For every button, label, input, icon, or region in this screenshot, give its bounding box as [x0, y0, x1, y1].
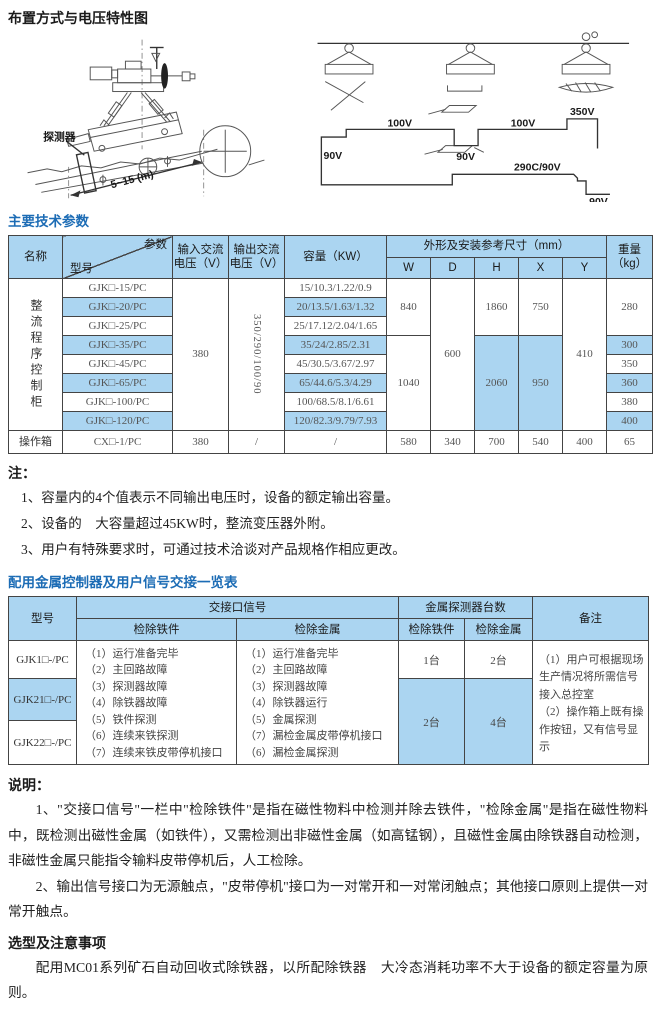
weight-cell: 380 [607, 393, 653, 412]
iron-count-cell: 2台 [399, 679, 465, 765]
weight-cell: 280 [607, 279, 653, 336]
col-header-model: 型号 [9, 597, 77, 641]
col-header-metal-count: 检除金属 [465, 619, 533, 641]
remark-cell: （1）用户可根据现场生产情况将所需信号接入总控室 （2）操作箱上既有操作按钮，又… [533, 641, 649, 765]
y-cell: 400 [563, 431, 607, 454]
voltage-label-90b: 90V [456, 151, 475, 163]
col-header-y: Y [563, 257, 607, 279]
note-item: 2、设备的 大容量超过45KW时，整流变压器外附。 [8, 511, 648, 537]
note-item: 3、用户有特殊要求时，可通过技术洽谈对产品规格作相应更改。 [8, 537, 648, 563]
capacity-cell: 35/24/2.85/2.31 [285, 336, 387, 355]
capacity-cell: 20/13.5/1.63/1.32 [285, 298, 387, 317]
layout-diagram: 探测器 5~15 (m) [8, 30, 302, 202]
voltage-diagram: 100V 100V 350V 90V 90V 290C/90V 90V [302, 30, 648, 202]
metal-count-cell: 4台 [465, 679, 533, 765]
weight-cell: 300 [607, 336, 653, 355]
voltage-label-100b: 100V [510, 118, 535, 130]
d-cell: 340 [431, 431, 475, 454]
col-header-vout: 输出交流 电压（V） [229, 236, 285, 279]
detector-label: 探测器 [43, 130, 76, 143]
model-cell: GJK□-65/PC [63, 374, 173, 393]
model-cell: GJK21□-/PC [9, 679, 77, 721]
col-header-remark: 备注 [533, 597, 649, 641]
voltage-label-90c: 90V [589, 196, 608, 202]
model-cell: GJK□-20/PC [63, 298, 173, 317]
metal-signals-cell: （1）运行准备完毕 （2）主回路故障 （3）探测器故障 （4）除铁器运行 （5）… [237, 641, 399, 765]
vout-cell: / [229, 431, 285, 454]
selection-para: 配用MC01系列矿石自动回收式除铁器，以所配除铁器 大冷态消耗功率不大于设备的额… [8, 955, 648, 1006]
model-cell: GJK□-15/PC [63, 279, 173, 298]
model-cell: GJK□-35/PC [63, 336, 173, 355]
y-cell: 410 [563, 279, 607, 431]
voltage-label-100a: 100V [387, 118, 412, 130]
x-cell: 750 [519, 279, 563, 336]
model-cell: GJK□-120/PC [63, 412, 173, 431]
col-header-d: D [431, 257, 475, 279]
vout-text: 350/290/100/90 [250, 314, 263, 395]
weight-cell: 360 [607, 374, 653, 393]
x-cell: 540 [519, 431, 563, 454]
voltage-label-290: 290C/90V [514, 161, 561, 173]
model-cell: GJK□-45/PC [63, 355, 173, 374]
x-cell: 950 [519, 336, 563, 431]
col-header-iron-count: 检除铁件 [399, 619, 465, 641]
col-header-detectors: 金属探测器台数 [399, 597, 533, 619]
model-cell: GJK□-25/PC [63, 317, 173, 336]
weight-cell: 400 [607, 412, 653, 431]
signal-table-heading: 配用金属控制器及用户信号交接一览表 [8, 571, 648, 591]
explanation-para-2: 2、输出信号接口为无源触点，"皮带停机"接口为一对常开和一对常闭触点；其他接口原… [8, 874, 648, 925]
iron-signals-cell: （1）运行准备完毕 （2）主回路故障 （3）探测器故障 （4）除铁器故障 （5）… [77, 641, 237, 765]
explanation-section: 说明： 1、"交接口信号"一栏中"检除铁件"是指在磁性物料中检测并除去铁件，"检… [8, 775, 648, 925]
diagram-row: 探测器 5~15 (m) [8, 30, 648, 202]
metal-count-cell: 2台 [465, 641, 533, 679]
note-item: 1、容量内的4个值表示不同输出电压时，设备的额定输出容量。 [8, 485, 648, 511]
selection-heading: 选型及注意事项 [8, 933, 648, 953]
col-header-capacity: 容量（KW） [285, 236, 387, 279]
col-header-dimensions: 外形及安装参考尺寸（mm） [387, 236, 607, 258]
col-header-x: X [519, 257, 563, 279]
capacity-cell: 100/68.5/8.1/6.61 [285, 393, 387, 412]
col-header-w: W [387, 257, 431, 279]
explanation-heading: 说明： [8, 775, 648, 795]
h-cell: 2060 [475, 336, 519, 431]
col-header-vin: 输入交流 电压（V） [173, 236, 229, 279]
tech-params-table: 名称 参数 型号 输入交流 电压（V） 输出交流 电压（V） 容量（KW） 外形… [8, 235, 653, 454]
col-header-weight: 重量 （kg） [607, 236, 653, 279]
w-cell: 1040 [387, 336, 431, 431]
page-title: 布置方式与电压特性图 [8, 8, 648, 28]
vin-cell: 380 [173, 431, 229, 454]
voltage-label-350: 350V [570, 106, 595, 118]
model-cell: GJK□-100/PC [63, 393, 173, 412]
signal-table: 型号 交接口信号 金属探测器台数 备注 检除铁件 检除金属 检除铁件 检除金属 … [8, 596, 649, 765]
dimension-label: 5~15 (m) [109, 168, 155, 191]
col-header-h: H [475, 257, 519, 279]
capacity-cell: 65/44.6/5.3/4.29 [285, 374, 387, 393]
vin-cell: 380 [173, 279, 229, 431]
corner-cell: 参数 型号 [63, 236, 173, 279]
w-cell: 840 [387, 279, 431, 336]
model-cell: GJK22□-/PC [9, 721, 77, 765]
vout-cell: 350/290/100/90 [229, 279, 285, 431]
col-header-iron-signals: 检除铁件 [77, 619, 237, 641]
col-header-name: 名称 [9, 236, 63, 279]
col-header-signals: 交接口信号 [77, 597, 399, 619]
capacity-cell: 120/82.3/9.79/7.93 [285, 412, 387, 431]
document-page: 布置方式与电压特性图 [0, 0, 654, 1012]
corner-model-label: 型号 [70, 262, 93, 276]
selection-section: 选型及注意事项 配用MC01系列矿石自动回收式除铁器，以所配除铁器 大冷态消耗功… [8, 933, 648, 1006]
d-cell: 600 [431, 279, 475, 431]
capacity-cell: 15/10.3/1.22/0.9 [285, 279, 387, 298]
corner-param-label: 参数 [144, 238, 167, 252]
col-header-metal-signals: 检除金属 [237, 619, 399, 641]
weight-cell: 350 [607, 355, 653, 374]
tech-params-heading: 主要技术参数 [8, 210, 648, 230]
capacity-cell: 25/17.12/2.04/1.65 [285, 317, 387, 336]
group-name-cell: 整流程序控制柜 [9, 279, 63, 431]
iron-count-cell: 1台 [399, 641, 465, 679]
capacity-cell: / [285, 431, 387, 454]
capacity-cell: 45/30.5/3.67/2.97 [285, 355, 387, 374]
voltage-label-90a: 90V [323, 150, 342, 162]
notes-heading: 注： [8, 463, 648, 483]
explanation-para-1: 1、"交接口信号"一栏中"检除铁件"是指在磁性物料中检测并除去铁件，"检除金属"… [8, 797, 648, 874]
w-cell: 580 [387, 431, 431, 454]
group-name-cell: 操作箱 [9, 431, 63, 454]
model-cell: GJK1□-/PC [9, 641, 77, 679]
notes-section: 注： 1、容量内的4个值表示不同输出电压时，设备的额定输出容量。 2、设备的 大… [8, 463, 648, 563]
weight-cell: 65 [607, 431, 653, 454]
model-cell: CX□-1/PC [63, 431, 173, 454]
h-cell: 1860 [475, 279, 519, 336]
h-cell: 700 [475, 431, 519, 454]
group-name-text: 整流程序控制柜 [29, 299, 42, 411]
